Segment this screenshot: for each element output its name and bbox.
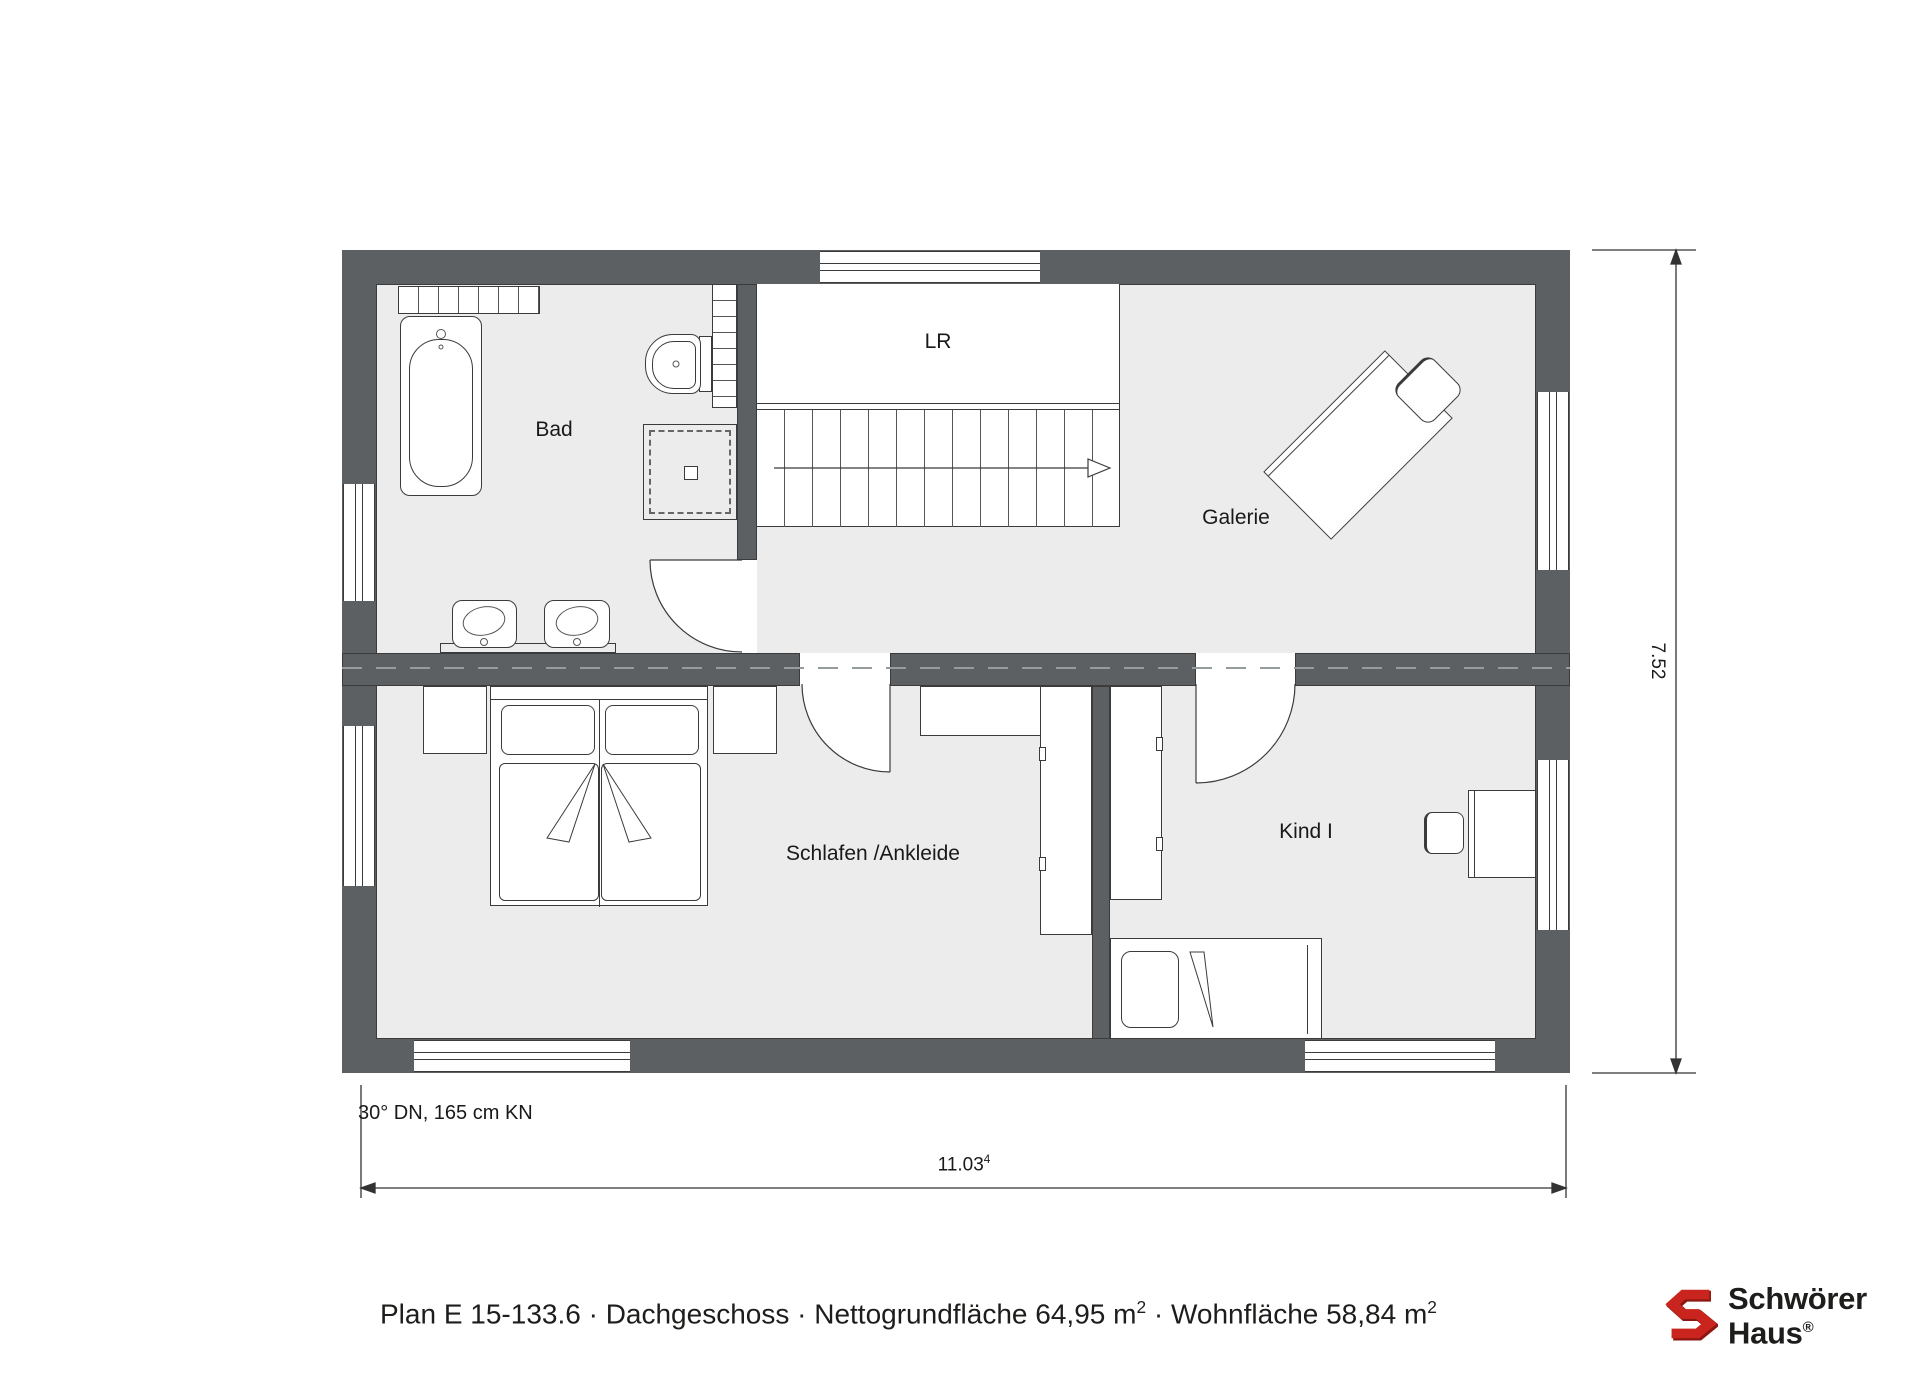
- desk-chair: [1424, 812, 1464, 854]
- door-opening-kind: [1196, 653, 1295, 686]
- door-opening-bad: [737, 560, 757, 653]
- mattress: [601, 763, 701, 901]
- window-bottom-kind: [1305, 1040, 1495, 1072]
- room-label-lr: LR: [878, 330, 998, 354]
- floor-plan: Bad LR Galerie Schlafen /Ankleide Kind I: [342, 250, 1570, 1073]
- shower: [643, 424, 737, 520]
- washbasin: [544, 600, 610, 648]
- wall-middle-right: [1295, 653, 1570, 686]
- wall-middle-left: [342, 653, 800, 686]
- washbasin: [452, 600, 517, 648]
- room-label-schlafen: Schlafen /Ankleide: [723, 842, 1023, 866]
- pillow: [1121, 951, 1179, 1028]
- roof-note: 30° DN, 165 cm KN: [358, 1102, 533, 1125]
- desk: [1468, 790, 1536, 878]
- installation-wall: [712, 284, 737, 408]
- mattress: [499, 763, 599, 901]
- room-label-kind: Kind I: [1226, 820, 1386, 844]
- pillow: [501, 705, 595, 755]
- bathtub: [400, 316, 482, 496]
- window-left-schlafen: [343, 726, 375, 886]
- towel-radiator: [398, 286, 540, 314]
- wardrobe: [1040, 686, 1092, 935]
- dimension-height: 7.52: [1646, 631, 1668, 691]
- schwoererhaus-logo: Schwörer Haus®: [1664, 1284, 1867, 1347]
- floor-plan-page: Bad LR Galerie Schlafen /Ankleide Kind I…: [0, 0, 1920, 1400]
- stairs: [757, 409, 1120, 527]
- nightstand: [423, 686, 487, 754]
- nightstand: [713, 686, 777, 754]
- window-top: [820, 251, 1040, 283]
- room-label-bad: Bad: [494, 418, 614, 442]
- logo-s-icon: [1664, 1284, 1718, 1344]
- window-left-bad: [343, 484, 375, 601]
- double-bed: [490, 686, 708, 906]
- wall-bad-stairwell: [737, 284, 757, 560]
- window-right-kind: [1537, 760, 1569, 930]
- wardrobe: [1110, 686, 1162, 900]
- section-dashed-line: [342, 667, 1570, 669]
- dimension-width: 11.034: [904, 1153, 1024, 1176]
- window-right-galerie: [1537, 392, 1569, 570]
- single-bed: [1110, 938, 1322, 1039]
- logo-text: Schwörer Haus®: [1728, 1284, 1867, 1347]
- window-bottom-schlafen: [414, 1040, 630, 1072]
- door-opening-schlafen: [800, 653, 890, 686]
- wall-middle-center: [890, 653, 1196, 686]
- plan-caption: Plan E 15-133.6 · Dachgeschoss · Nettogr…: [380, 1297, 1437, 1330]
- dresser: [920, 686, 1042, 736]
- pillow: [605, 705, 699, 755]
- toilet: [645, 334, 701, 394]
- room-label-galerie: Galerie: [1136, 506, 1336, 530]
- wall-schlafen-kind: [1092, 686, 1110, 1039]
- luftraum-edge-line: [757, 403, 1120, 404]
